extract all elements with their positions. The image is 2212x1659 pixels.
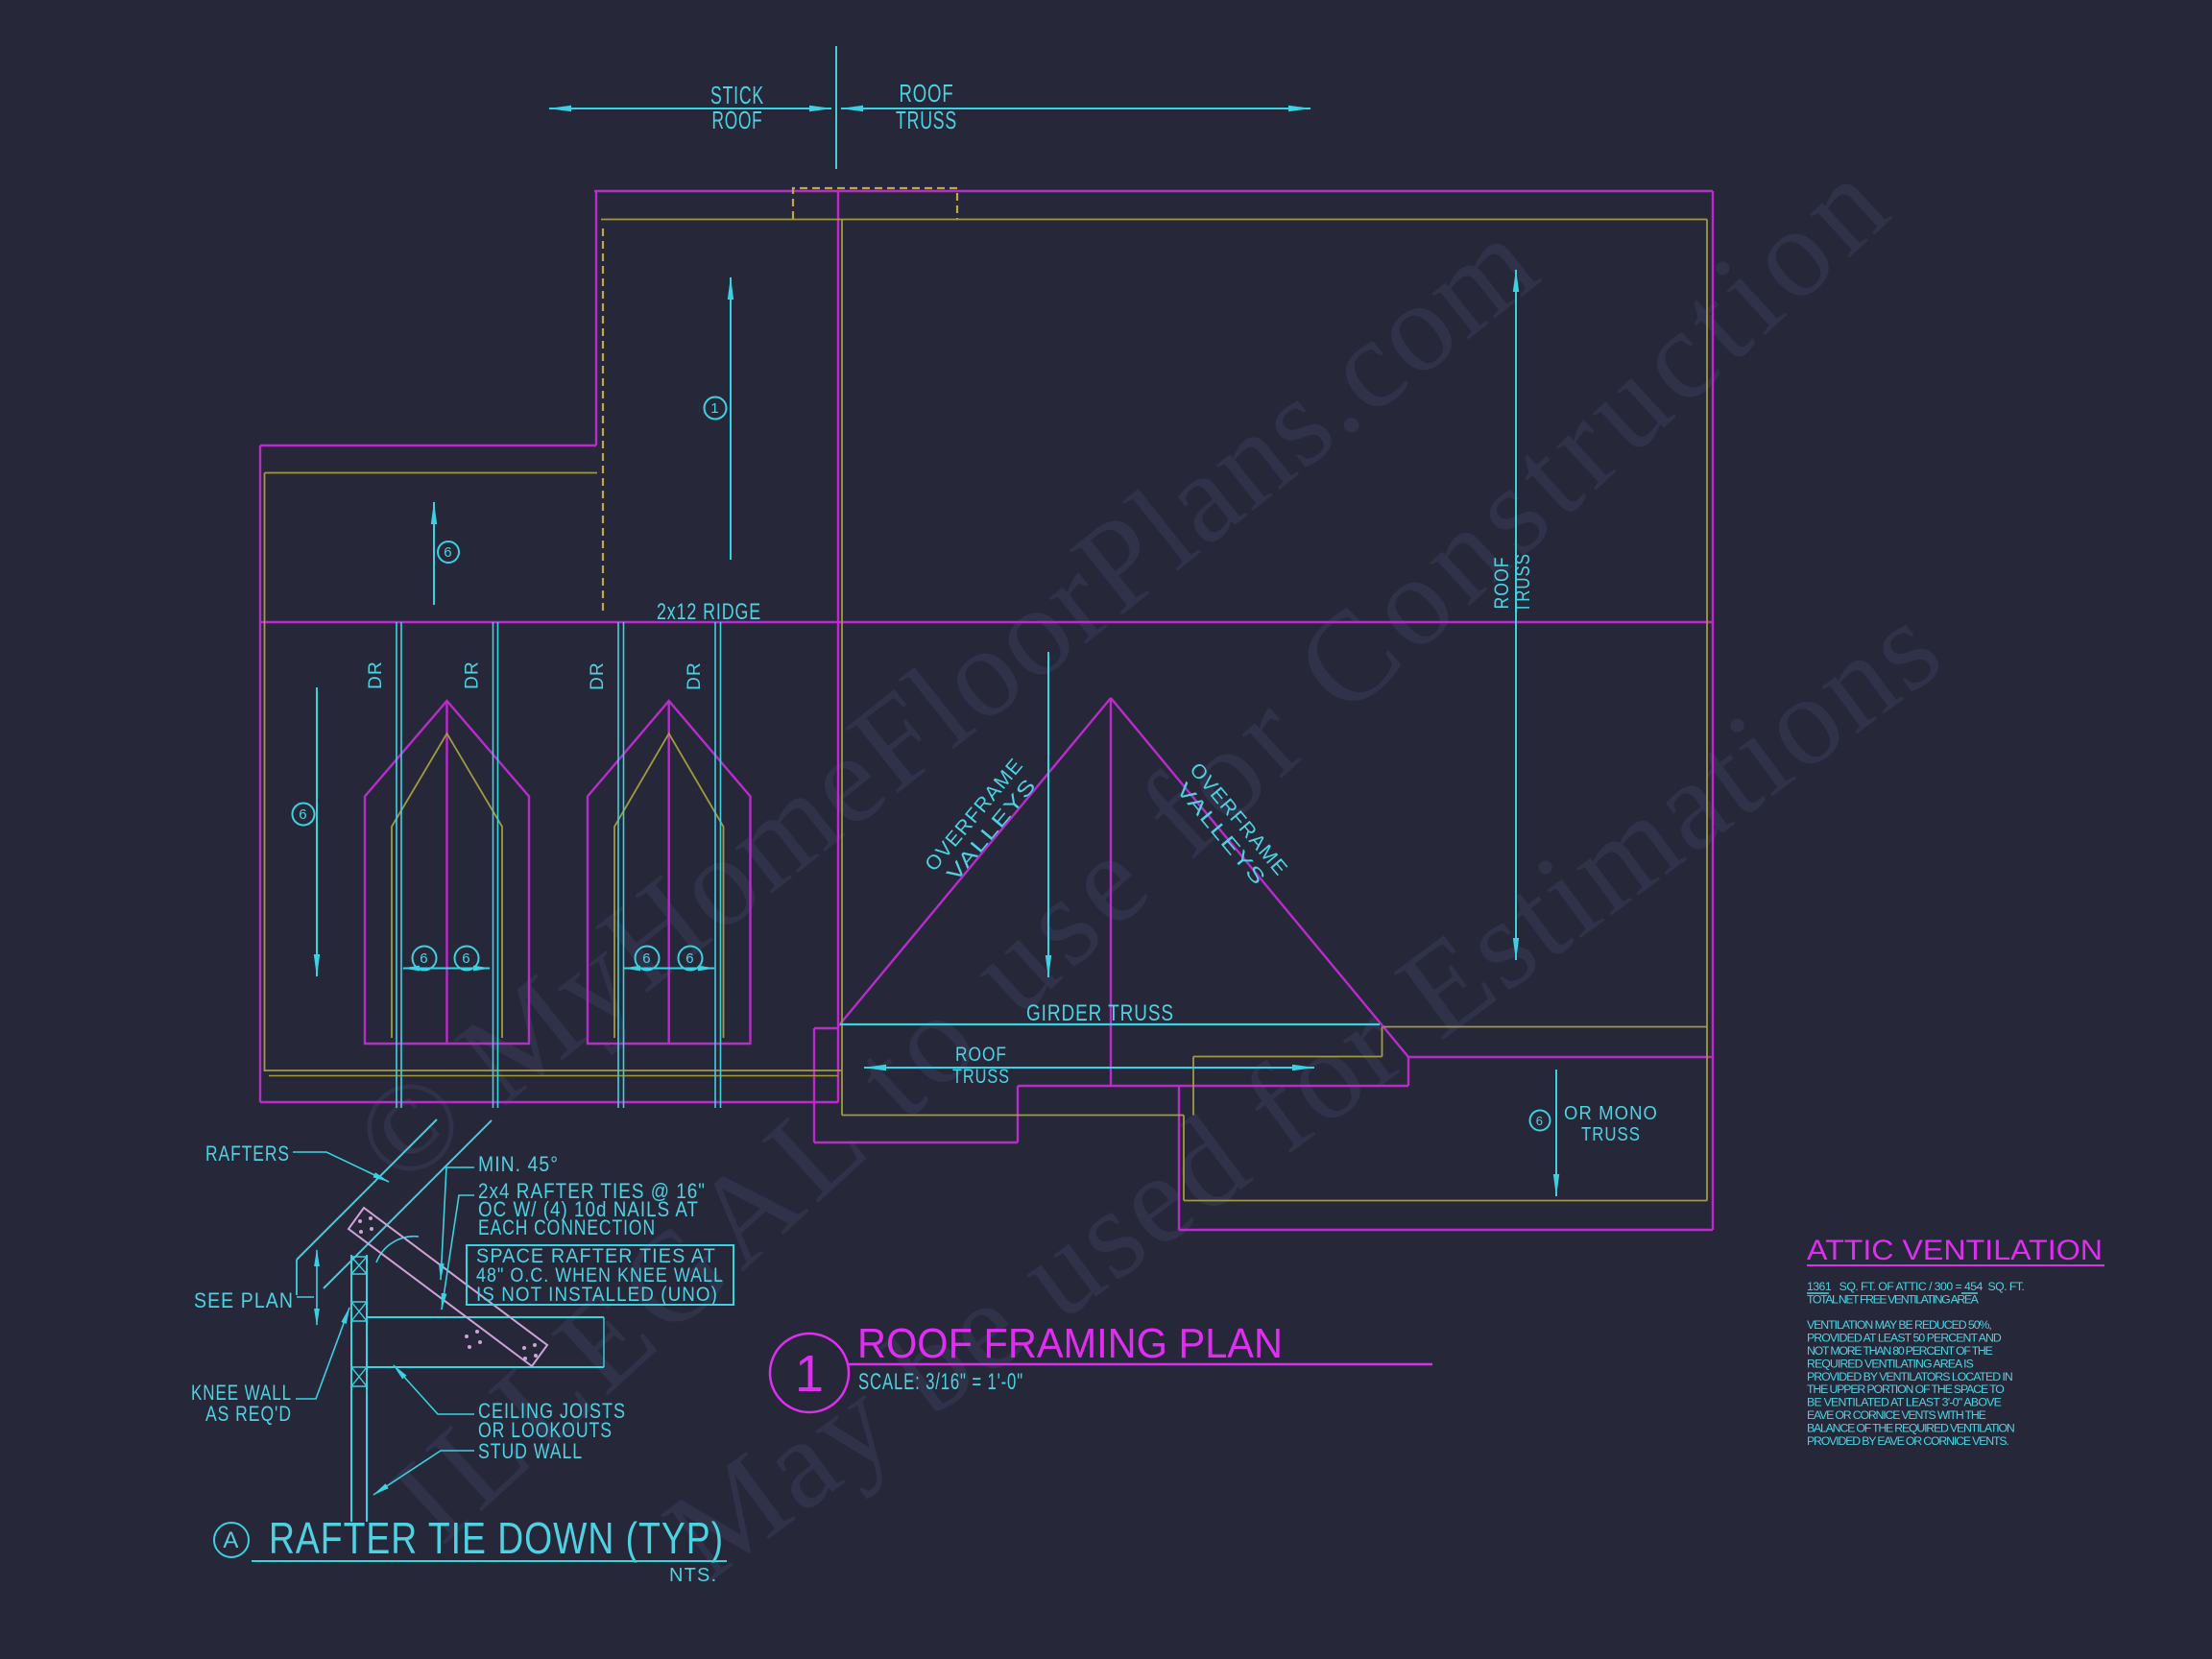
svg-text:2x12 RIDGE: 2x12 RIDGE bbox=[657, 599, 761, 625]
svg-text:GIRDER TRUSS: GIRDER TRUSS bbox=[1026, 1000, 1174, 1026]
svg-text:ROOF: ROOF bbox=[955, 1044, 1007, 1066]
svg-text:ROOF: ROOF bbox=[712, 106, 763, 134]
svg-text:ATTIC VENTILATION: ATTIC VENTILATION bbox=[1807, 1235, 2103, 1266]
svg-text:EAVE OR CORNICE VENTS WITH THE: EAVE OR CORNICE VENTS WITH THE bbox=[1807, 1408, 1987, 1422]
svg-text:REQUIRED VENTILATING AREA IS: REQUIRED VENTILATING AREA IS bbox=[1807, 1357, 1975, 1370]
svg-text:6: 6 bbox=[444, 544, 453, 561]
svg-text:6: 6 bbox=[299, 806, 308, 823]
svg-text:1: 1 bbox=[795, 1345, 824, 1403]
svg-text:SCALE: 3/16" = 1'-0": SCALE: 3/16" = 1'-0" bbox=[858, 1369, 1023, 1395]
svg-text:1: 1 bbox=[710, 400, 720, 417]
svg-text:PROVIDED BY EAVE OR CORNICE VE: PROVIDED BY EAVE OR CORNICE VENTS. bbox=[1807, 1434, 2010, 1448]
svg-text:TRUSS: TRUSS bbox=[1512, 553, 1534, 613]
svg-text:6: 6 bbox=[642, 950, 652, 967]
svg-text:DR: DR bbox=[366, 661, 386, 689]
svg-text:6: 6 bbox=[1536, 1114, 1544, 1128]
svg-text:A: A bbox=[223, 1527, 239, 1553]
svg-text:TRUSS: TRUSS bbox=[896, 106, 957, 134]
svg-text:BALANCE OF THE REQUIRED VENTIL: BALANCE OF THE REQUIRED VENTILATION bbox=[1807, 1421, 2016, 1434]
svg-text:RAFTERS: RAFTERS bbox=[205, 1142, 290, 1166]
svg-text:TRUSS: TRUSS bbox=[1581, 1124, 1641, 1145]
svg-text:OR MONO: OR MONO bbox=[1564, 1103, 1658, 1124]
svg-text:STUD WALL: STUD WALL bbox=[478, 1439, 583, 1463]
svg-text:RAFTER TIE DOWN (TYP): RAFTER TIE DOWN (TYP) bbox=[269, 1513, 724, 1563]
svg-text:ROOF: ROOF bbox=[1491, 557, 1513, 610]
svg-text:DR: DR bbox=[685, 661, 705, 690]
svg-text:AS REQ'D: AS REQ'D bbox=[205, 1402, 292, 1426]
svg-text:ROOF: ROOF bbox=[900, 79, 954, 108]
svg-text:THE UPPER PORTION OF THE SPACE: THE UPPER PORTION OF THE SPACE TO bbox=[1807, 1382, 2006, 1396]
svg-text:6: 6 bbox=[420, 950, 429, 967]
svg-text:VENTILATION MAY BE REDUCED 50%: VENTILATION MAY BE REDUCED 50%, bbox=[1807, 1318, 1993, 1332]
svg-text:DR: DR bbox=[588, 661, 608, 690]
svg-text:IS NOT INSTALLED (UNO): IS NOT INSTALLED (UNO) bbox=[476, 1284, 718, 1306]
svg-text:TOTAL NET FREE VENTILATING ARE: TOTAL NET FREE VENTILATING AREA bbox=[1807, 1292, 1980, 1306]
svg-text:PROVIDED AT LEAST 50 PERCENT A: PROVIDED AT LEAST 50 PERCENT AND bbox=[1807, 1332, 2003, 1345]
svg-text:NTS.: NTS. bbox=[669, 1565, 717, 1586]
svg-text:BE VENTILATED AT LEAST 3'-0" A: BE VENTILATED AT LEAST 3'-0" ABOVE bbox=[1807, 1396, 2003, 1409]
svg-text:TRUSS: TRUSS bbox=[952, 1066, 1010, 1088]
svg-text:6: 6 bbox=[462, 950, 471, 967]
svg-text:PROVIDED BY VENTILATORS LOCATE: PROVIDED BY VENTILATORS LOCATED IN bbox=[1807, 1370, 2014, 1383]
svg-text:ROOF FRAMING PLAN: ROOF FRAMING PLAN bbox=[857, 1320, 1283, 1367]
svg-text:1361 SQ. FT. OF ATTIC / 300: 1361 SQ. FT. OF ATTIC / 300 = 454 SQ. FT… bbox=[1807, 1280, 2026, 1293]
svg-text:EACH CONNECTION: EACH CONNECTION bbox=[478, 1215, 656, 1239]
svg-text:MIN. 45°: MIN. 45° bbox=[478, 1152, 559, 1176]
svg-text:SEE PLAN: SEE PLAN bbox=[194, 1288, 294, 1312]
svg-text:DR: DR bbox=[463, 661, 483, 689]
svg-text:NOT MORE THAN 80 PERCENT OF TH: NOT MORE THAN 80 PERCENT OF THE bbox=[1807, 1344, 1994, 1358]
svg-text:6: 6 bbox=[685, 950, 695, 967]
